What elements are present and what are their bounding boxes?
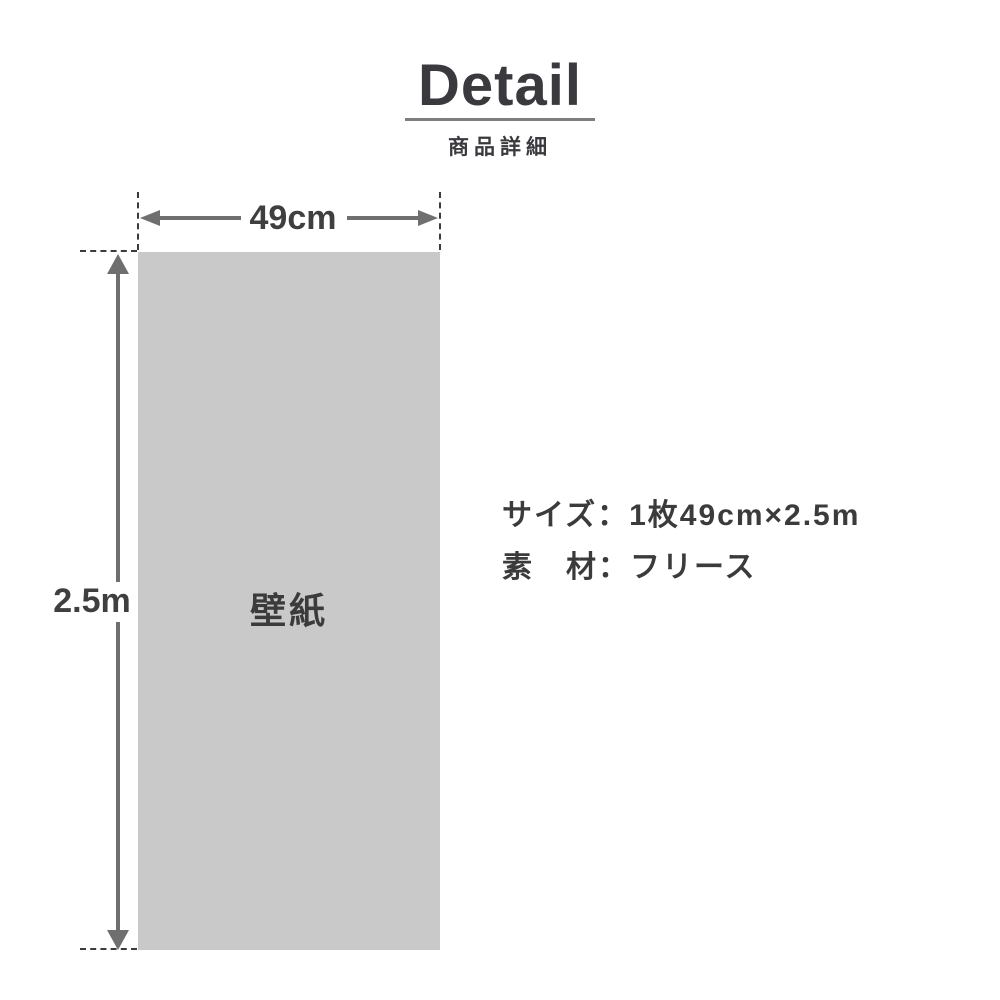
height-arrowhead-up-icon (107, 254, 129, 274)
wallpaper-label: 壁紙 (250, 568, 328, 634)
title-underline (405, 118, 595, 121)
extension-dash-vertical-left (137, 192, 139, 250)
spec-size-line: サイズ：1枚49cm×2.5m (502, 490, 860, 534)
page-subtitle: 商品詳細 (0, 131, 1000, 161)
extension-dash-horizontal-top (80, 250, 137, 252)
extension-dash-vertical-right (439, 192, 441, 250)
page-title: Detail (0, 52, 1000, 119)
wallpaper-sheet-rect: 壁紙 (138, 252, 440, 950)
height-dimension-line-top (116, 272, 120, 582)
width-dimension-label: 49cm (238, 199, 348, 238)
product-detail-figure: Detail 商品詳細 壁紙 49cm 2.5m サイズ：1枚49cm×2.5m… (0, 0, 1000, 1000)
width-dimension-line-left (159, 216, 241, 220)
extension-dash-horizontal-bottom (80, 948, 137, 950)
width-arrowhead-left-icon (140, 210, 160, 226)
height-dimension-line-bottom (116, 622, 120, 930)
width-dimension-line-right (347, 216, 419, 220)
spec-material-line: 素 材：フリース (502, 542, 757, 586)
width-arrowhead-right-icon (418, 210, 438, 226)
height-dimension-label: 2.5m (52, 582, 132, 620)
height-arrowhead-down-icon (107, 930, 129, 950)
